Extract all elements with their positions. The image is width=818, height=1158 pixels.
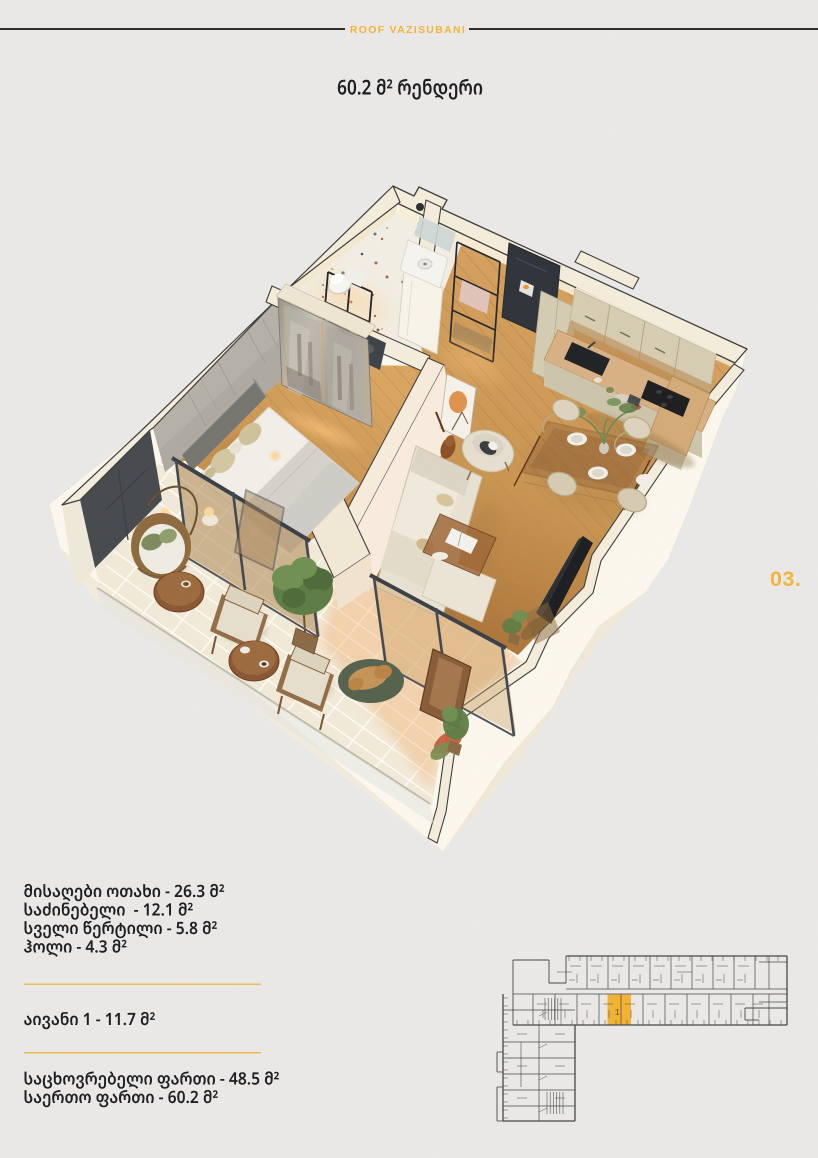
svg-text:03.: 03. [770,567,801,591]
svg-text:1: 1 [615,1007,620,1017]
svg-text:ROOF VAZISUBANI: ROOF VAZISUBANI [350,24,466,36]
